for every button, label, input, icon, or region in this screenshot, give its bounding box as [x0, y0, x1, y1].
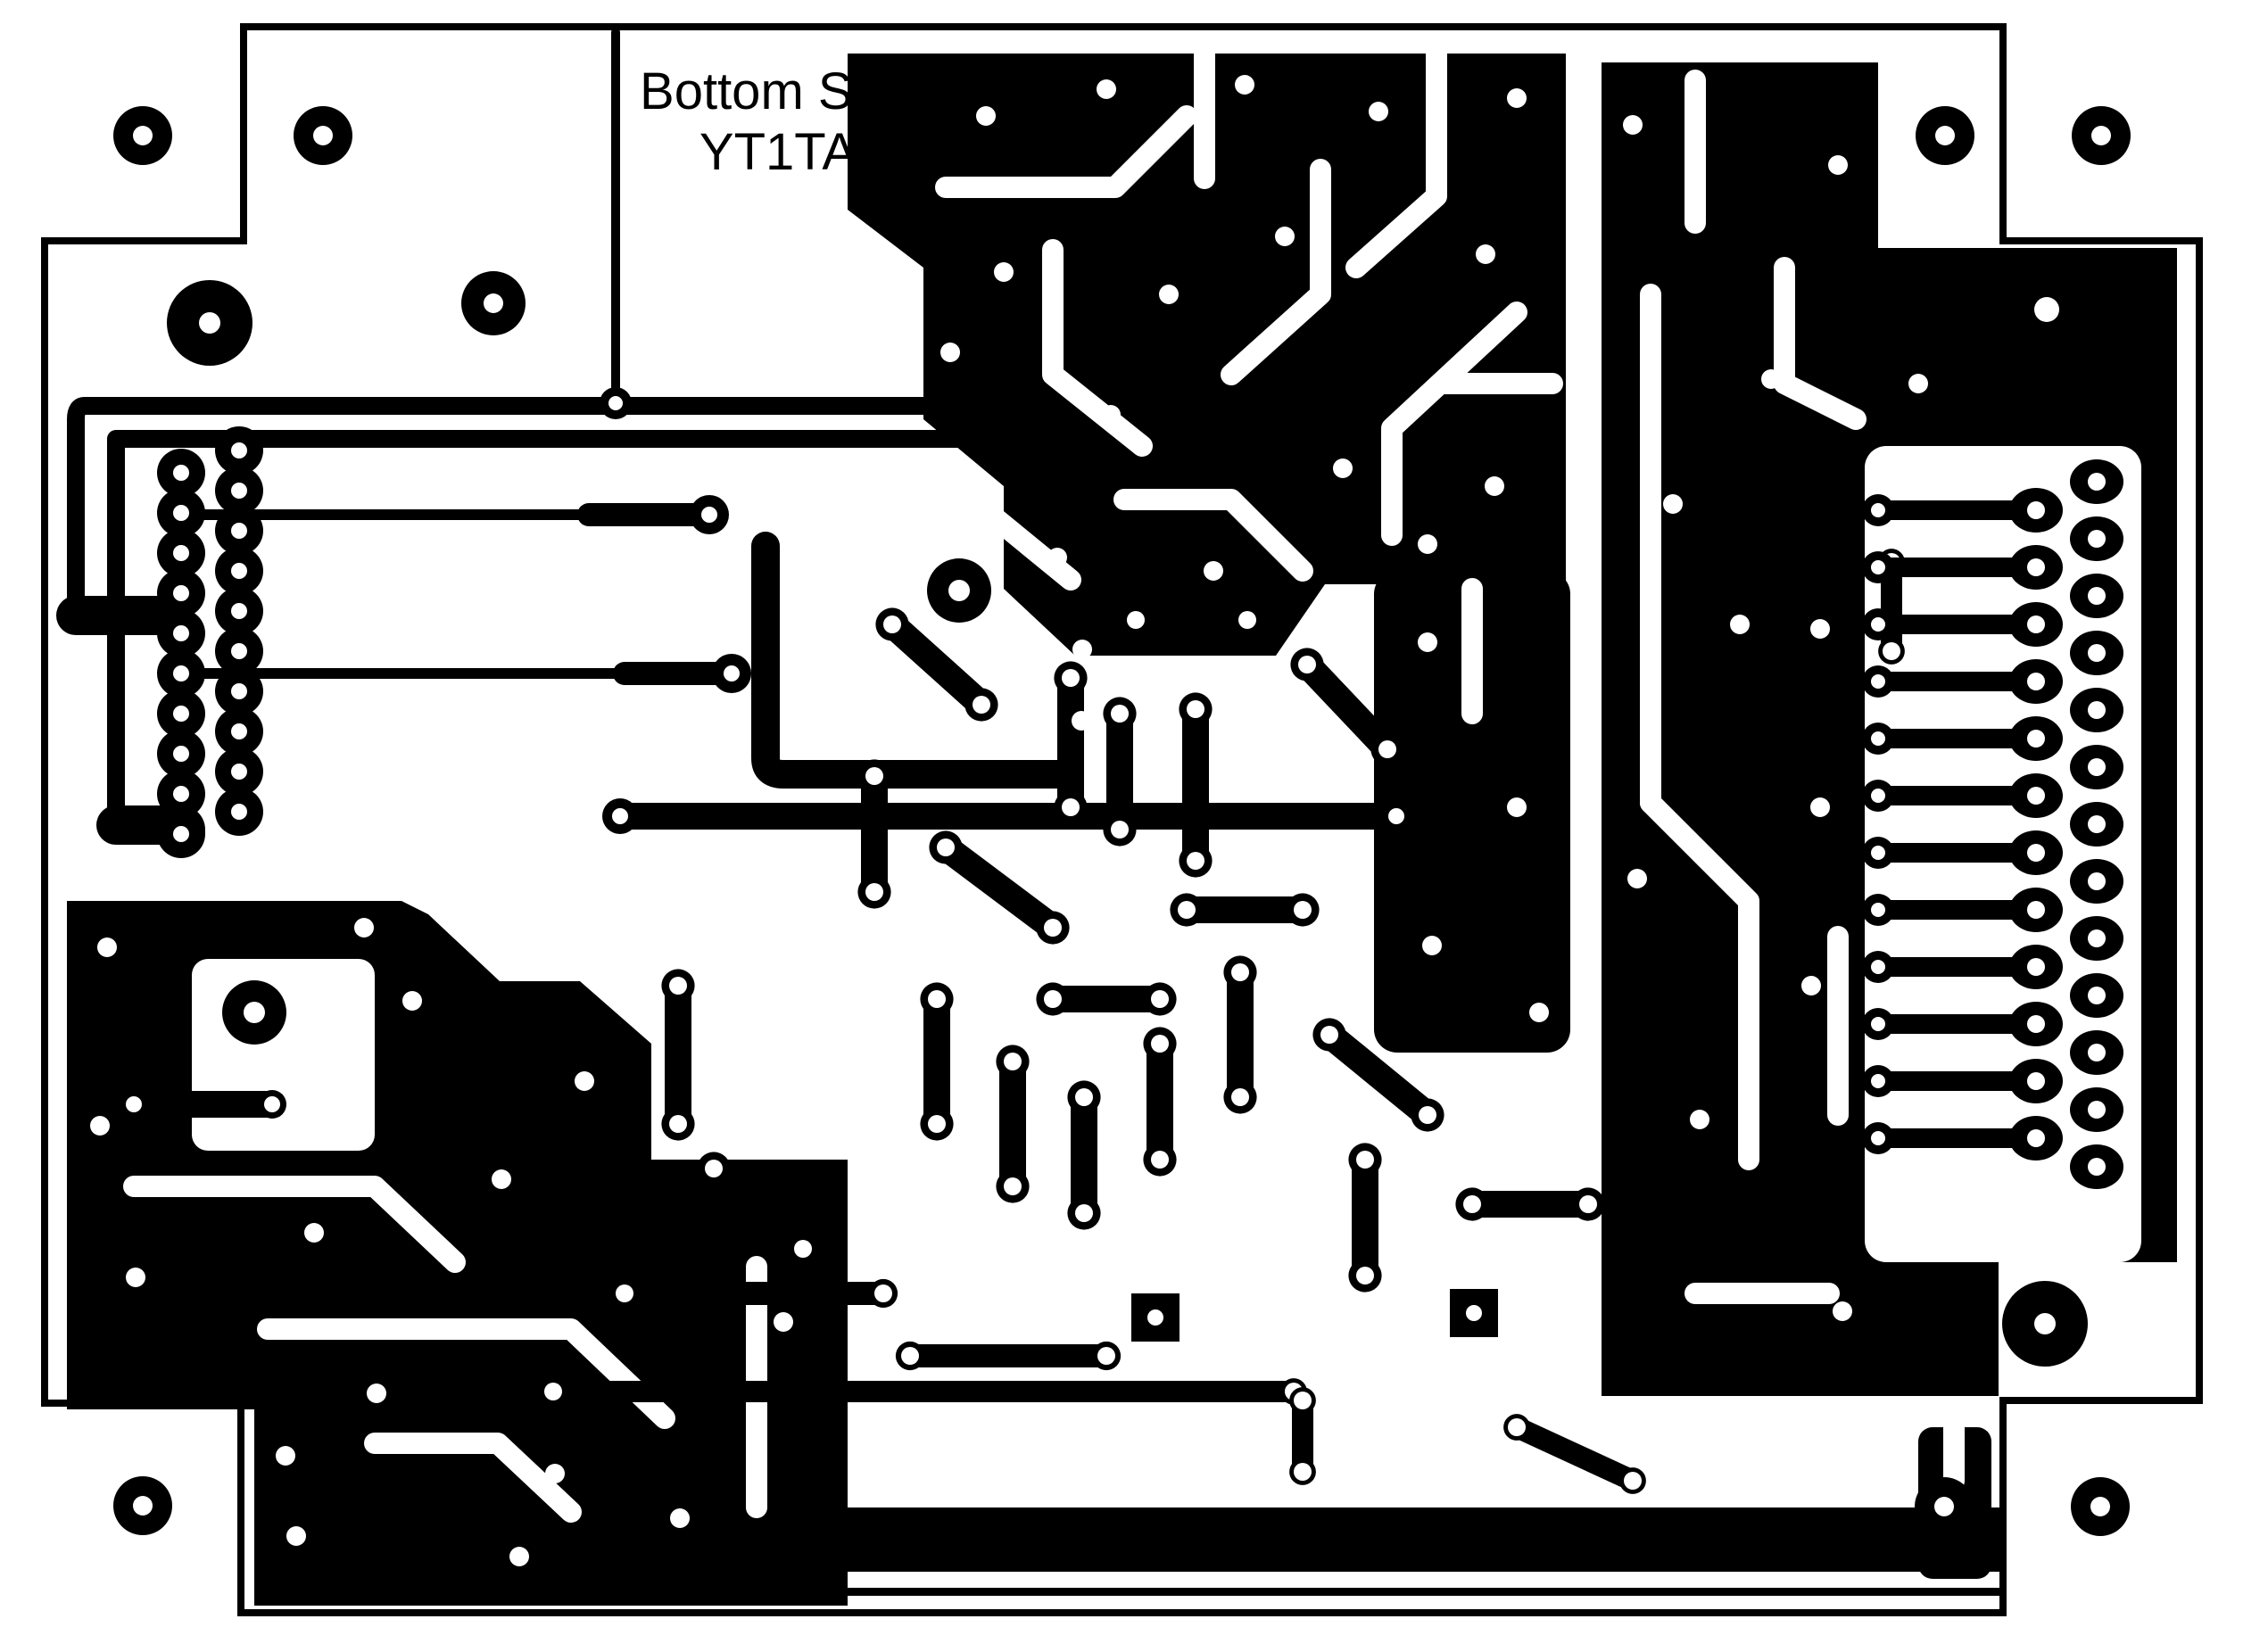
- title-line2: YT1TA: [699, 123, 857, 181]
- trace-bottom-thin: [268, 1588, 2000, 1596]
- pcb-document: Bottom Side YT1TA: [0, 0, 2268, 1652]
- pcb-layout-image: Bottom Side YT1TA: [0, 0, 2268, 1652]
- plane-bottom-band: [268, 1507, 2000, 1572]
- plane-top-right-upper: [1602, 62, 1878, 248]
- title-line1: Bottom Side: [640, 62, 922, 120]
- island-bottom-left: [192, 959, 375, 1151]
